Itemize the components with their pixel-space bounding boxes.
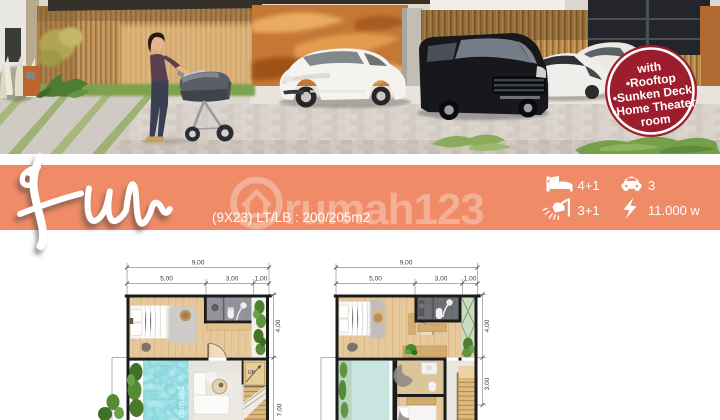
- svg-text:5,00: 5,00: [160, 276, 173, 283]
- svg-text:1,00: 1,00: [464, 276, 477, 283]
- svg-text:3,00: 3,00: [226, 276, 239, 283]
- svg-text:4+1: 4+1: [578, 178, 600, 193]
- svg-text:(9X23) LT/LB : 200/205m2: (9X23) LT/LB : 200/205m2: [212, 210, 370, 225]
- svg-text:9,00: 9,00: [192, 260, 205, 267]
- svg-text:9,00: 9,00: [400, 260, 413, 267]
- svg-text:5,00: 5,00: [369, 276, 382, 283]
- svg-text:rumah1: rumah1: [176, 385, 186, 418]
- svg-text:4,00: 4,00: [484, 319, 491, 332]
- svg-text:7,00: 7,00: [277, 403, 284, 416]
- svg-text:4,00: 4,00: [275, 319, 282, 332]
- svg-text:11.000 w: 11.000 w: [648, 203, 700, 218]
- svg-text:3,00: 3,00: [484, 377, 491, 390]
- svg-text:3: 3: [648, 178, 655, 193]
- svg-text:3+1: 3+1: [578, 203, 600, 218]
- svg-text:1,00: 1,00: [255, 276, 268, 283]
- svg-text:3,00: 3,00: [435, 276, 448, 283]
